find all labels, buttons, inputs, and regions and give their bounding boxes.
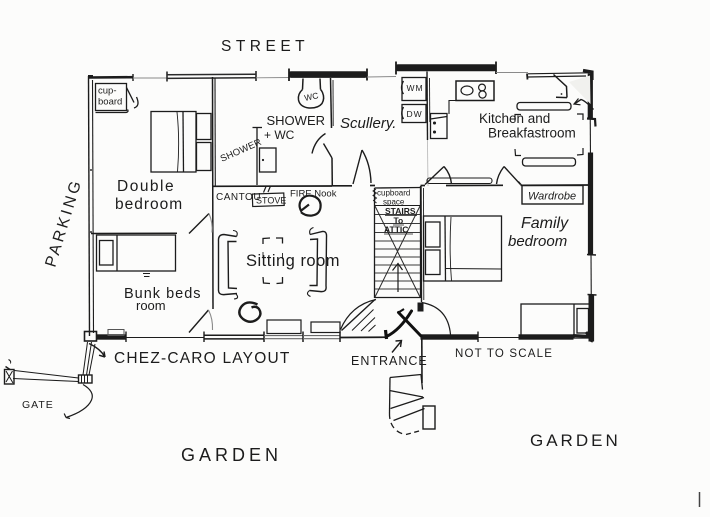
svg-text:STAIRS: STAIRS [385,206,416,216]
svg-text:GARDEN: GARDEN [181,445,282,465]
svg-text:GATE: GATE [22,399,54,411]
svg-text:cupboard: cupboard [377,189,410,198]
svg-text:CHEZ-CARO LAYOUT: CHEZ-CARO LAYOUT [114,350,291,367]
svg-text:Double: Double [117,178,175,195]
svg-text:GARDEN: GARDEN [530,431,621,450]
svg-text:cup-: cup- [98,86,116,97]
svg-text:room: room [136,298,166,313]
svg-text:ENTRANCE: ENTRANCE [351,354,428,368]
svg-text:WM: WM [407,83,424,93]
svg-text:NOT TO SCALE: NOT TO SCALE [455,348,553,360]
svg-text:STREET: STREET [221,38,309,55]
svg-text:Scullery.: Scullery. [340,115,396,132]
svg-text:Breakfastroom: Breakfastroom [488,126,576,141]
svg-text:bedroom: bedroom [508,233,567,250]
svg-text:STOVE: STOVE [256,196,286,206]
svg-text:SHOWER: SHOWER [267,113,326,128]
svg-text:FIRE Nook: FIRE Nook [290,189,337,200]
svg-text:DW: DW [407,109,423,119]
svg-text:bedroom: bedroom [115,196,183,213]
svg-text:ATTIC: ATTIC [384,225,408,235]
svg-text:Family: Family [521,215,569,232]
svg-text:Wardrobe: Wardrobe [528,191,576,203]
svg-text:board: board [98,97,122,108]
svg-text:+ WC: + WC [264,128,295,142]
